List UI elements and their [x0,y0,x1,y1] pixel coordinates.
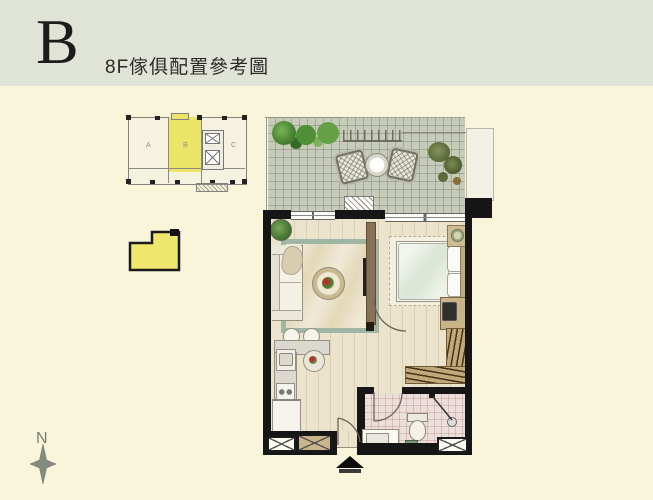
compass-star-icon [30,444,56,484]
bedroom-door-arc [374,299,406,331]
entrance-arrow-icon [336,456,364,468]
floorplan-page: B 8F傢俱配置參考圖 A B C [0,0,653,500]
bathroom-door-arc [374,393,402,421]
entrance-door-arc [338,418,360,442]
shower-glass-line [433,397,452,420]
entrance-arrow-base [339,469,361,473]
plan-overlay [0,0,653,500]
compass-north-label: N [36,430,48,448]
